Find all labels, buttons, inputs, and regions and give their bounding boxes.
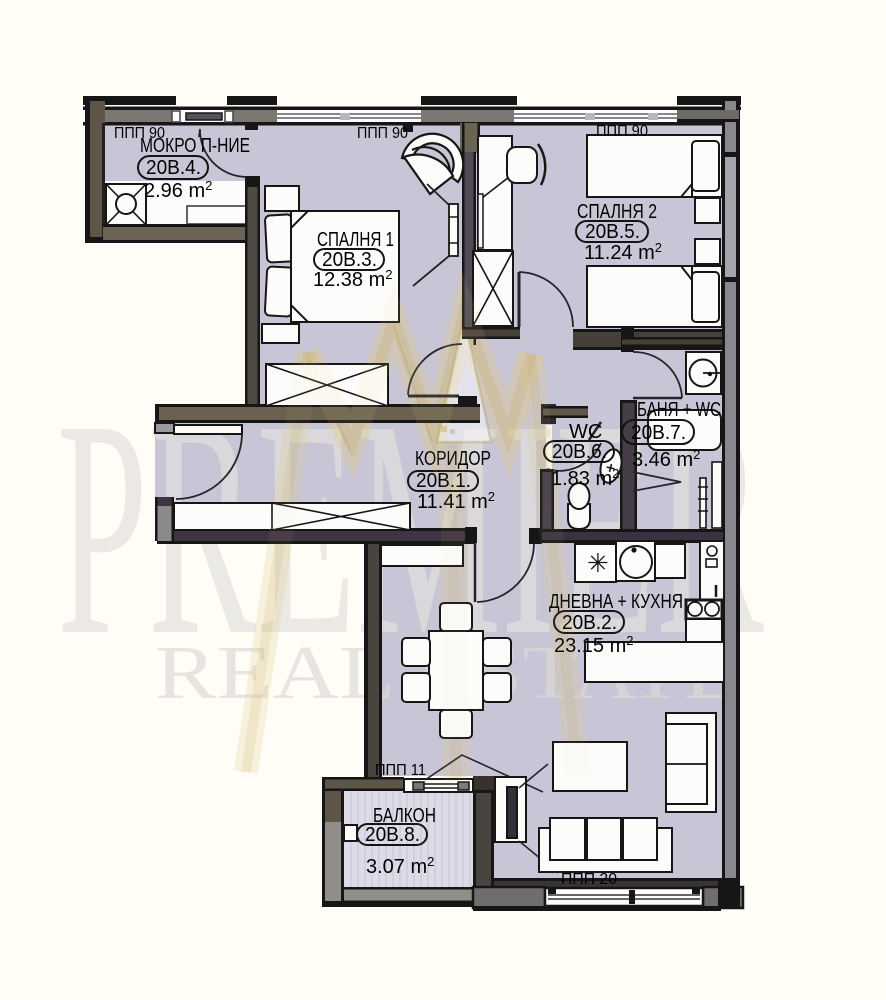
- svg-text:ППП 90: ППП 90: [357, 125, 408, 142]
- svg-text:11.24 m2: 11.24 m2: [584, 240, 662, 264]
- svg-text:20В.7.: 20В.7.: [631, 422, 686, 444]
- svg-text:СПАЛНЯ 1: СПАЛНЯ 1: [317, 229, 394, 251]
- svg-text:СПАЛНЯ 2: СПАЛНЯ 2: [577, 201, 657, 223]
- svg-text:20В.5.: 20В.5.: [585, 221, 640, 243]
- svg-text:20В.6.: 20В.6.: [552, 441, 607, 463]
- svg-text:12.38 m2: 12.38 m2: [313, 267, 393, 291]
- svg-text:ППП 11: ППП 11: [375, 762, 426, 779]
- svg-text:2.96 m2: 2.96 m2: [144, 178, 212, 202]
- svg-text:✳: ✳: [587, 548, 609, 578]
- svg-text:МОКРО П-НИЕ: МОКРО П-НИЕ: [140, 135, 250, 157]
- svg-text:3.07 m2: 3.07 m2: [366, 854, 434, 878]
- svg-text:20В.4.: 20В.4.: [146, 157, 201, 179]
- svg-text:ППП 90: ППП 90: [596, 123, 648, 140]
- svg-text:WC: WC: [569, 421, 602, 443]
- svg-text:ППП 20: ППП 20: [561, 871, 617, 888]
- svg-text:20В.3.: 20В.3.: [322, 249, 377, 271]
- svg-text:1.83 m2: 1.83 m2: [551, 466, 619, 490]
- svg-text:20В.8.: 20В.8.: [365, 824, 420, 846]
- svg-text:3.46 m2: 3.46 m2: [632, 447, 700, 471]
- svg-text:БАНЯ + WC: БАНЯ + WC: [637, 399, 721, 421]
